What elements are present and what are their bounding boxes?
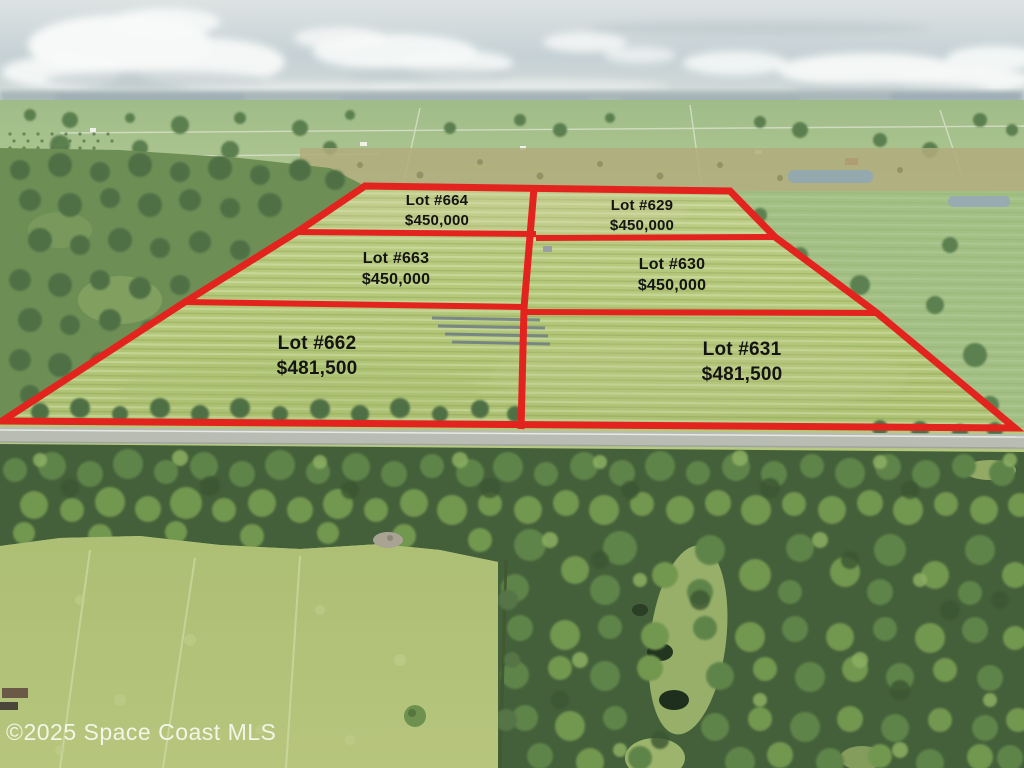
lot-price: $481,500 (277, 356, 358, 381)
lot-number: Lot #663 (363, 248, 430, 269)
lot-price: $450,000 (638, 275, 706, 296)
lot-number: Lot #629 (611, 196, 673, 216)
lot-label-631: Lot #631 $481,500 (702, 337, 783, 387)
lot-label-630: Lot #630 $450,000 (638, 254, 706, 296)
lone-tree (404, 705, 426, 727)
lot-price: $450,000 (362, 269, 430, 290)
lot-price: $450,000 (610, 216, 674, 236)
lot-number: Lot #662 (278, 331, 357, 356)
mls-watermark: ©2025 Space Coast MLS (6, 719, 276, 746)
lot-label-662: Lot #662 $481,500 (277, 331, 358, 381)
lot-price: $450,000 (405, 211, 469, 231)
lot-label-664: Lot #664 $450,000 (405, 191, 469, 231)
lot-price: $481,500 (702, 362, 783, 387)
aerial-photo-background (0, 0, 1024, 768)
lot-label-663: Lot #663 $450,000 (362, 248, 430, 290)
lot-number: Lot #664 (406, 191, 468, 211)
sky (0, 0, 1024, 102)
lot-label-629: Lot #629 $450,000 (610, 196, 674, 236)
aerial-photo: Lot #664 $450,000 Lot #629 $450,000 Lot … (0, 0, 1024, 768)
lot-number: Lot #630 (639, 254, 706, 275)
lot-number: Lot #631 (703, 337, 782, 362)
